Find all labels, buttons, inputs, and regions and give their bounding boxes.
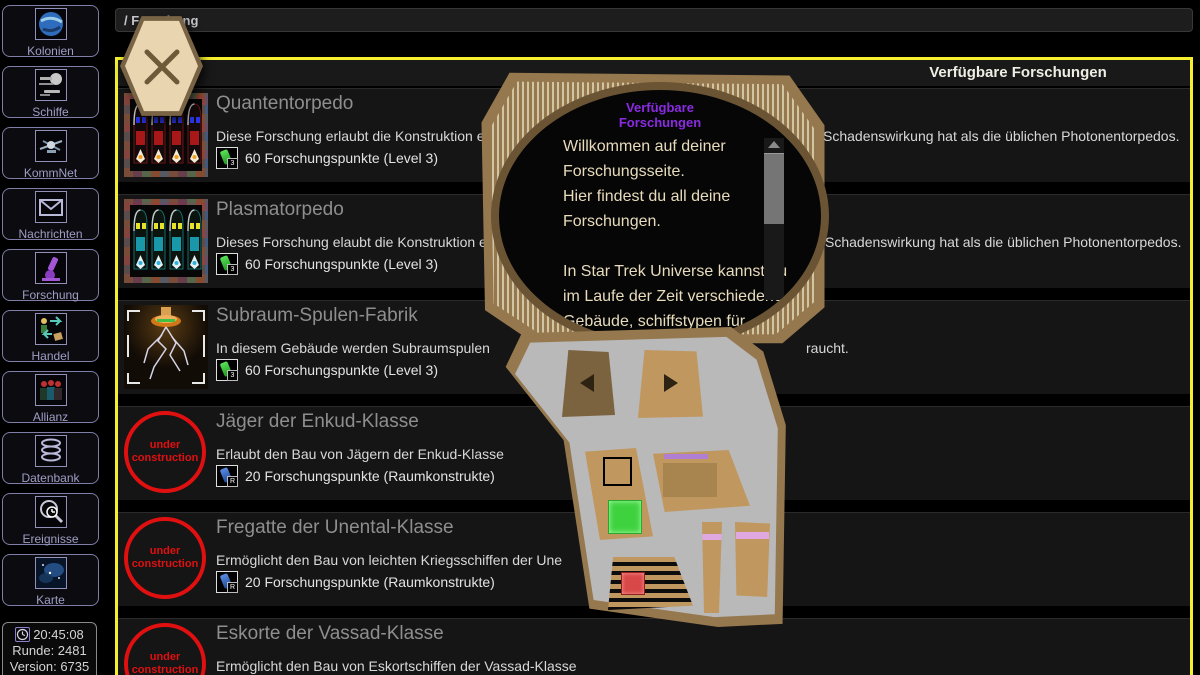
sidebar-item-karte[interactable]: Karte <box>2 554 99 606</box>
green-light-indicator <box>608 500 642 534</box>
status-box: 20:45:08 Runde: 2481 Version: 6735 <box>2 622 97 675</box>
tricorder-head: Verfügbare Forschungen Willkommen auf de… <box>478 70 828 346</box>
research-cost: 60 Forschungspunkte (Level 3) <box>245 256 438 272</box>
alliance-icon <box>35 374 67 406</box>
research-cost: 60 Forschungspunkte (Level 3) <box>245 150 438 166</box>
sidebar-item-label: Forschung <box>3 288 98 302</box>
sidebar-item-label: Kolonien <box>3 44 98 58</box>
research-title: Quantentorpedo <box>216 93 353 115</box>
sidebar-item-ereignisse[interactable]: Ereignisse <box>2 493 99 545</box>
breadcrumb: / Forschung <box>115 8 1193 32</box>
sidebar-item-label: KommNet <box>3 166 98 180</box>
research-points-icon: 3 <box>216 253 238 275</box>
research-points-icon: 3 <box>216 359 238 381</box>
events-icon <box>35 496 67 528</box>
subspace-coil-factory-image <box>124 305 208 389</box>
pink-stripe-indicator <box>736 532 769 539</box>
game-time: 20:45:08 <box>33 627 84 642</box>
research-cost: 20 Forschungspunkte (Raumkonstrukte) <box>245 468 495 484</box>
tricorder-slider-large[interactable] <box>735 522 770 597</box>
game-screen: Kolonien Schiffe KommNet Nachrichten For <box>0 0 1200 675</box>
arrow-right-icon <box>664 374 678 392</box>
tricorder-help-popup: Verfügbare Forschungen Willkommen auf de… <box>478 68 830 630</box>
black-square-indicator <box>603 457 632 486</box>
sidebar-item-allianz[interactable]: Allianz <box>2 371 99 423</box>
popup-body-text: Willkommen auf deiner Forschungsseite. H… <box>563 134 791 350</box>
under-construction-badge: under construction <box>124 517 208 601</box>
popup-scrollbar[interactable] <box>764 138 784 300</box>
research-description-cont: Schadenswirkung hat als die üblichen Pho… <box>823 128 1179 144</box>
research-points-icon: 3 <box>216 147 238 169</box>
microscope-icon <box>35 252 67 284</box>
under-construction-badge: under construction <box>124 411 208 495</box>
prev-page-button[interactable] <box>562 350 615 417</box>
sidebar-item-datenbank[interactable]: Datenbank <box>2 432 99 484</box>
research-description: In diesem Gebäude werden Subraumspulen <box>216 340 490 356</box>
sidebar-item-kommnet[interactable]: KommNet <box>2 127 99 179</box>
game-version: Version: 6735 <box>3 659 96 675</box>
arrow-left-icon <box>580 374 594 392</box>
sidebar-item-label: Schiffe <box>3 105 98 119</box>
sidebar-item-nachrichten[interactable]: Nachrichten <box>2 188 99 240</box>
research-description: Erlaubt den Bau von Jägern der Enkud-Kla… <box>216 446 504 462</box>
research-title: Plasmatorpedo <box>216 199 344 221</box>
station-icon <box>35 130 67 162</box>
close-icon <box>141 46 183 88</box>
sidebar-item-label: Datenbank <box>3 471 98 485</box>
red-light-indicator <box>621 572 645 595</box>
plasma-torpedo-image <box>124 199 208 283</box>
sidebar-item-label: Ereignisse <box>3 532 98 546</box>
next-page-button[interactable] <box>638 350 703 418</box>
research-title: Eskorte der Vassad-Klasse <box>216 623 444 645</box>
tricorder-body <box>496 324 818 630</box>
under-construction-badge: under construction <box>124 623 208 675</box>
sidebar-item-kolonien[interactable]: Kolonien <box>2 5 99 57</box>
sidebar-item-forschung[interactable]: Forschung <box>2 249 99 301</box>
scrollbar-thumb[interactable] <box>764 153 784 224</box>
research-cost: 20 Forschungspunkte (Raumkonstrukte) <box>245 574 495 590</box>
sidebar-item-schiffe[interactable]: Schiffe <box>2 66 99 118</box>
research-cost: 60 Forschungspunkte (Level 3) <box>245 362 438 378</box>
research-description: Diese Forschung erlaubt die Konstruktion… <box>216 128 484 144</box>
game-round: Runde: 2481 <box>3 643 96 659</box>
research-title: Fregatte der Unental-Klasse <box>216 517 454 539</box>
panel-title: Verfügbare Forschungen <box>878 64 1158 81</box>
trade-icon <box>35 313 67 345</box>
sidebar-item-label: Nachrichten <box>3 227 98 241</box>
clock-icon <box>15 627 30 642</box>
purple-stripe-indicator <box>664 454 708 459</box>
ships-icon <box>35 69 67 101</box>
sidebar-item-handel[interactable]: Handel <box>2 310 99 362</box>
research-description: Ermöglicht den Bau von Eskortschiffen de… <box>216 658 577 674</box>
pink-stripe-indicator <box>702 534 722 540</box>
database-icon <box>35 435 67 467</box>
planet-icon <box>35 8 67 40</box>
scroll-up-icon[interactable] <box>768 141 780 148</box>
research-title: Subraum-Spulen-Fabrik <box>216 305 418 327</box>
sidebar-item-label: Karte <box>3 593 98 607</box>
tricorder-slider-small[interactable] <box>702 522 722 613</box>
sidebar-item-label: Handel <box>3 349 98 363</box>
popup-title: Verfügbare Forschungen <box>499 100 821 130</box>
research-points-icon: R <box>216 465 238 487</box>
research-points-icon: R <box>216 571 238 593</box>
map-icon <box>35 557 67 589</box>
research-description-cont: Schadenswirkung hat als die üblichen Pho… <box>825 234 1181 250</box>
research-description: Dieses Forschung elaubt die Konstruktion… <box>216 234 487 250</box>
research-title: Jäger der Enkud-Klasse <box>216 411 419 433</box>
close-button[interactable] <box>120 14 203 118</box>
envelope-icon <box>35 191 67 223</box>
sidebar-item-label: Allianz <box>3 410 98 424</box>
popup-screen: Verfügbare Forschungen Willkommen auf de… <box>491 82 829 350</box>
